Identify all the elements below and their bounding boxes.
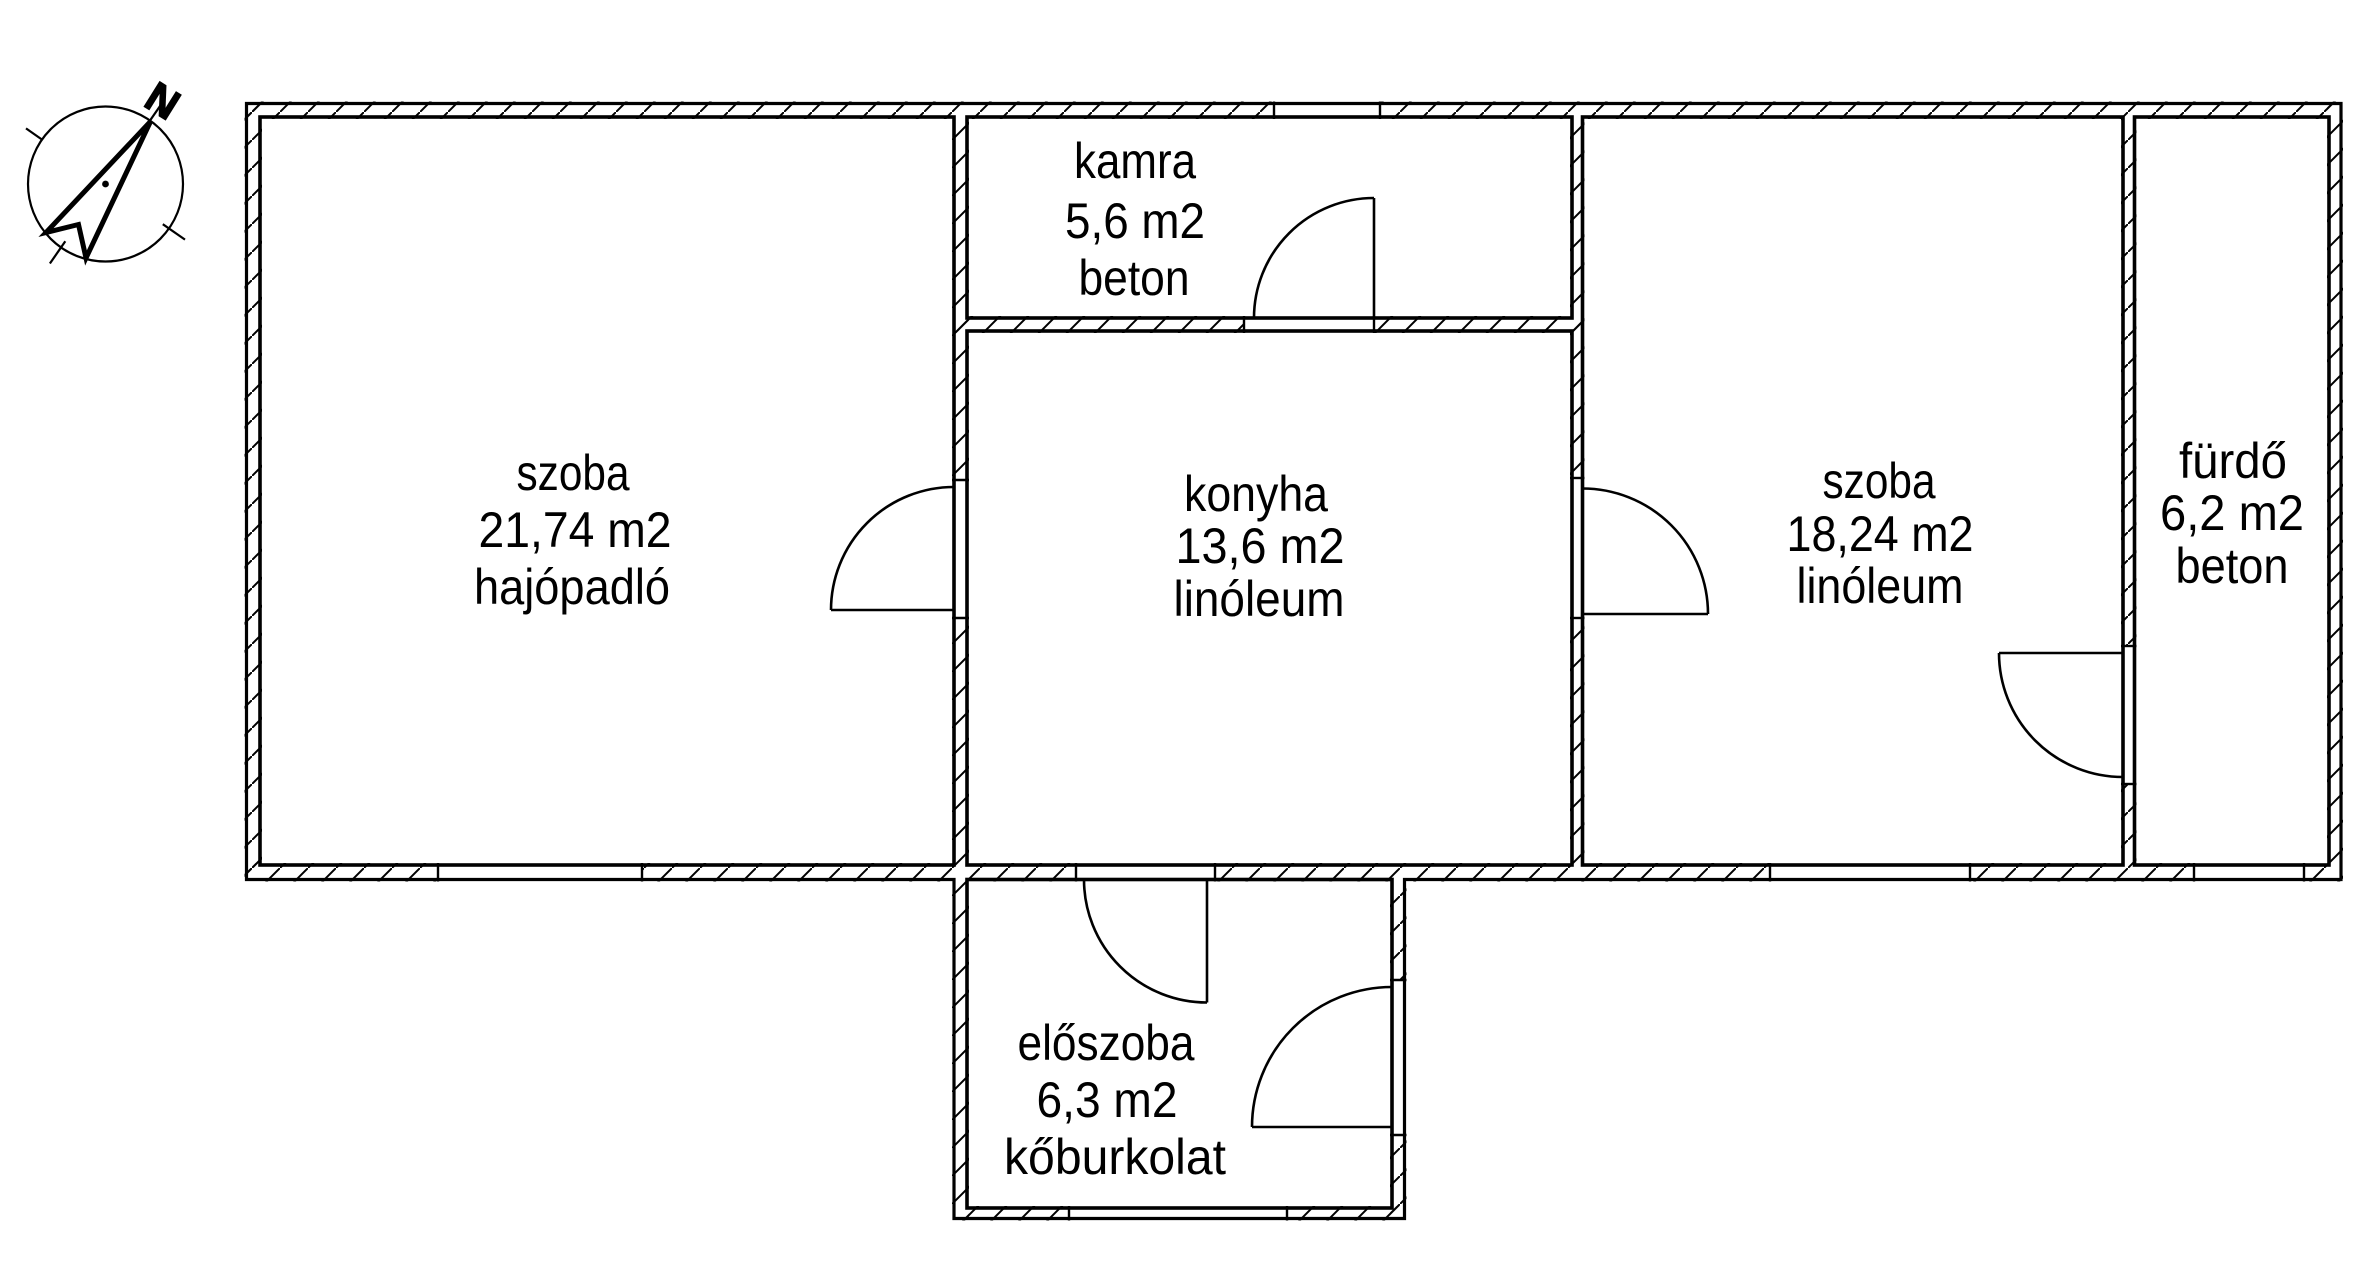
svg-text:beton: beton <box>2176 538 2289 594</box>
svg-text:6,3 m2: 6,3 m2 <box>1037 1072 1178 1128</box>
svg-text:21,74 m2: 21,74 m2 <box>479 502 672 558</box>
svg-text:kamra: kamra <box>1074 133 1196 189</box>
svg-text:hajópadló: hajópadló <box>474 559 670 615</box>
svg-text:5,6 m2: 5,6 m2 <box>1065 193 1205 249</box>
svg-text:13,6 m2: 13,6 m2 <box>1176 518 1345 574</box>
svg-text:szoba: szoba <box>1823 453 1936 509</box>
svg-text:6,2 m2: 6,2 m2 <box>2160 485 2304 541</box>
svg-text:szoba: szoba <box>517 445 630 501</box>
svg-text:18,24 m2: 18,24 m2 <box>1787 506 1974 562</box>
svg-text:linóleum: linóleum <box>1174 571 1345 627</box>
svg-text:beton: beton <box>1079 250 1190 306</box>
svg-text:előszoba: előszoba <box>1018 1015 1195 1071</box>
svg-text:fürdő: fürdő <box>2179 433 2287 489</box>
svg-text:konyha: konyha <box>1184 466 1328 522</box>
svg-text:linóleum: linóleum <box>1797 558 1964 614</box>
svg-text:kőburkolat: kőburkolat <box>1004 1129 1226 1185</box>
